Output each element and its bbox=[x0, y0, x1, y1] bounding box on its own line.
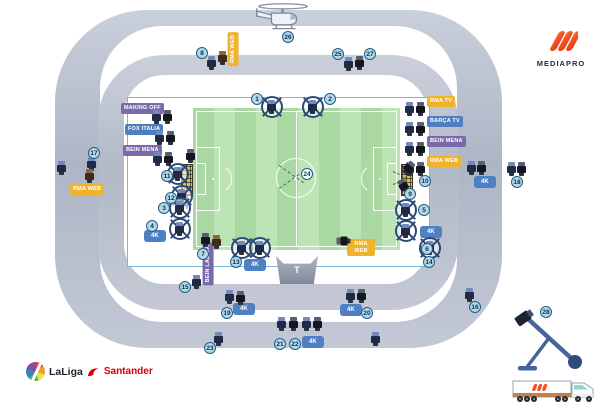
camera-number-badge: 22 bbox=[289, 338, 301, 350]
camera-icon bbox=[401, 224, 410, 238]
uhd-4k-label: 4K bbox=[340, 304, 362, 316]
camera-base bbox=[269, 111, 274, 114]
camera-base bbox=[291, 328, 296, 331]
camera-icon bbox=[517, 162, 526, 176]
camera-body bbox=[313, 321, 322, 328]
camera-body bbox=[237, 245, 246, 252]
camera-number-badge: 27 bbox=[364, 48, 376, 60]
camera-base bbox=[214, 246, 219, 249]
camera-icon bbox=[344, 57, 353, 71]
camera-icon bbox=[166, 131, 175, 145]
camera-icon bbox=[467, 161, 476, 175]
camera-base bbox=[216, 343, 221, 346]
camera-body bbox=[175, 226, 184, 233]
camera-icon bbox=[85, 169, 94, 183]
broadcast-label: BEIN MENA bbox=[427, 136, 466, 147]
camera-number-badge: 16 bbox=[469, 301, 481, 313]
camera-overlay-layer: MAKING OFFFOX ITALIABEIN MENARMA TVBARÇA… bbox=[0, 0, 605, 419]
camera-icon bbox=[57, 161, 66, 175]
camera-icon bbox=[477, 161, 486, 175]
camera-number-badge: 23 bbox=[204, 342, 216, 354]
camera-body bbox=[225, 294, 234, 301]
camera-icon bbox=[155, 131, 164, 145]
camera-number-badge: 4 bbox=[146, 220, 158, 232]
camera-body bbox=[153, 156, 162, 163]
camera-body bbox=[308, 104, 317, 111]
camera-icon bbox=[201, 233, 210, 247]
camera-base bbox=[87, 180, 92, 183]
camera-base bbox=[346, 68, 351, 71]
camera-number-badge: 19 bbox=[221, 307, 233, 319]
broadcast-label: RMA WEB bbox=[347, 239, 375, 256]
camera-base bbox=[220, 62, 225, 65]
camera-body bbox=[164, 156, 173, 163]
camera-number-badge: 17 bbox=[88, 147, 100, 159]
camera-icon bbox=[207, 56, 216, 70]
camera-base bbox=[227, 301, 232, 304]
camera-number-badge: 21 bbox=[274, 338, 286, 350]
camera-body bbox=[214, 336, 223, 343]
camera-icon bbox=[214, 332, 223, 346]
camera-base bbox=[203, 244, 208, 247]
camera-icon bbox=[236, 291, 245, 305]
camera-icon bbox=[405, 102, 414, 116]
camera-body bbox=[416, 106, 425, 113]
camera-icon bbox=[267, 100, 276, 114]
camera-icon bbox=[308, 100, 317, 114]
camera-base bbox=[348, 300, 353, 303]
camera-base bbox=[407, 113, 412, 116]
camera-icon bbox=[405, 122, 414, 136]
camera-body bbox=[405, 106, 414, 113]
camera-base bbox=[418, 113, 423, 116]
camera-icon bbox=[212, 235, 221, 249]
camera-icon bbox=[416, 102, 425, 116]
broadcast-label: RMA WEB bbox=[228, 32, 239, 66]
camera-base bbox=[239, 252, 244, 255]
camera-base bbox=[348, 239, 351, 244]
camera-base bbox=[479, 172, 484, 175]
stadium-camera-plan: T bbox=[0, 0, 605, 419]
camera-number-badge: 20 bbox=[361, 307, 373, 319]
camera-body bbox=[186, 153, 195, 160]
broadcast-label: BARÇA TV bbox=[427, 116, 463, 127]
camera-body bbox=[507, 166, 516, 173]
camera-icon bbox=[237, 241, 246, 255]
camera-body bbox=[416, 166, 425, 173]
camera-base bbox=[403, 235, 408, 238]
camera-icon bbox=[405, 142, 414, 156]
camera-body bbox=[401, 207, 410, 214]
camera-body bbox=[517, 166, 526, 173]
camera-body bbox=[467, 165, 476, 172]
camera-body bbox=[87, 161, 96, 168]
camera-icon bbox=[225, 290, 234, 304]
camera-icon bbox=[218, 51, 227, 65]
camera-body bbox=[212, 239, 221, 246]
camera-base bbox=[407, 153, 412, 156]
camera-body bbox=[236, 295, 245, 302]
camera-base bbox=[168, 142, 173, 145]
camera-number-badge: 8 bbox=[196, 47, 208, 59]
camera-icon bbox=[346, 289, 355, 303]
camera-number-badge: 18 bbox=[511, 176, 523, 188]
camera-icon bbox=[163, 110, 172, 124]
uhd-4k-label: 4K bbox=[144, 230, 166, 242]
camera-number-badge: 9 bbox=[404, 188, 416, 200]
camera-body bbox=[155, 135, 164, 142]
camera-body bbox=[416, 146, 425, 153]
camera-base bbox=[238, 302, 243, 305]
camera-base bbox=[403, 214, 408, 217]
camera-body bbox=[341, 237, 348, 246]
camera-body bbox=[85, 173, 94, 180]
camera-base bbox=[154, 121, 159, 124]
camera-body bbox=[355, 60, 364, 67]
camera-number-badge: 13 bbox=[230, 256, 242, 268]
camera-body bbox=[405, 146, 414, 153]
camera-icon bbox=[313, 317, 322, 331]
camera-body bbox=[344, 61, 353, 68]
camera-base bbox=[279, 328, 284, 331]
camera-body bbox=[346, 293, 355, 300]
camera-base bbox=[418, 153, 423, 156]
camera-icon bbox=[175, 222, 184, 236]
camera-body bbox=[277, 321, 286, 328]
camera-body bbox=[255, 245, 264, 252]
uhd-4k-label: 4K bbox=[244, 259, 266, 271]
camera-body bbox=[163, 114, 172, 121]
camera-icon bbox=[152, 110, 161, 124]
camera-body bbox=[57, 165, 66, 172]
camera-ring-icon bbox=[249, 237, 271, 259]
camera-base bbox=[310, 111, 315, 114]
camera-icon bbox=[416, 162, 425, 176]
camera-number-badge: 12 bbox=[165, 192, 177, 204]
broadcast-label: RMA TV bbox=[427, 96, 455, 107]
camera-ring-icon bbox=[169, 218, 191, 240]
camera-number-badge: 3 bbox=[158, 202, 170, 214]
camera-body bbox=[192, 279, 201, 286]
camera-ring-icon bbox=[395, 199, 417, 221]
camera-icon bbox=[173, 167, 182, 181]
camera-base bbox=[59, 172, 64, 175]
camera-icon bbox=[302, 317, 311, 331]
camera-base bbox=[166, 163, 171, 166]
camera-base bbox=[155, 163, 160, 166]
camera-number-badge: 26 bbox=[282, 31, 294, 43]
camera-body bbox=[416, 126, 425, 133]
camera-base bbox=[177, 212, 182, 215]
camera-number-badge: 10 bbox=[419, 175, 431, 187]
camera-body bbox=[218, 55, 227, 62]
camera-base bbox=[157, 142, 162, 145]
camera-icon bbox=[175, 201, 184, 215]
camera-icon bbox=[186, 149, 195, 163]
camera-base bbox=[509, 173, 514, 176]
camera-icon bbox=[357, 289, 366, 303]
camera-icon bbox=[255, 241, 264, 255]
camera-base bbox=[165, 121, 170, 124]
camera-body bbox=[173, 171, 182, 178]
broadcast-label: RMA WEB bbox=[70, 184, 104, 195]
camera-body bbox=[371, 336, 380, 343]
camera-number-badge: 25 bbox=[332, 48, 344, 60]
camera-icon bbox=[507, 162, 516, 176]
camera-icon bbox=[164, 152, 173, 166]
camera-body bbox=[477, 165, 486, 172]
camera-number-badge: 24 bbox=[301, 168, 313, 180]
camera-icon bbox=[192, 275, 201, 289]
camera-base bbox=[418, 133, 423, 136]
camera-body bbox=[405, 126, 414, 133]
camera-icon bbox=[416, 122, 425, 136]
camera-body bbox=[302, 321, 311, 328]
camera-icon bbox=[337, 237, 351, 246]
camera-body bbox=[175, 205, 184, 212]
camera-number-badge: 7 bbox=[197, 248, 209, 260]
camera-body bbox=[357, 293, 366, 300]
camera-number-badge: 1 bbox=[251, 93, 263, 105]
camera-number-badge: 15 bbox=[179, 281, 191, 293]
camera-number-badge: 6 bbox=[421, 243, 433, 255]
camera-body bbox=[207, 60, 216, 67]
camera-base bbox=[209, 67, 214, 70]
camera-base bbox=[177, 233, 182, 236]
camera-body bbox=[401, 228, 410, 235]
camera-icon bbox=[416, 142, 425, 156]
camera-number-badge: 5 bbox=[418, 204, 430, 216]
camera-body bbox=[289, 321, 298, 328]
camera-icon bbox=[277, 317, 286, 331]
camera-number-badge: 11 bbox=[161, 170, 173, 182]
camera-base bbox=[304, 328, 309, 331]
camera-body bbox=[152, 114, 161, 121]
camera-base bbox=[359, 300, 364, 303]
camera-ring-icon bbox=[261, 96, 283, 118]
camera-base bbox=[519, 173, 524, 176]
camera-icon bbox=[371, 332, 380, 346]
broadcast-label: RMA WEB bbox=[427, 156, 461, 167]
camera-base bbox=[257, 252, 262, 255]
camera-base bbox=[194, 286, 199, 289]
camera-base bbox=[188, 160, 193, 163]
camera-base bbox=[357, 67, 362, 70]
camera-icon bbox=[355, 56, 364, 70]
camera-base bbox=[407, 133, 412, 136]
uhd-4k-label: 4K bbox=[302, 336, 324, 348]
camera-icon bbox=[401, 160, 417, 177]
camera-number-badge: 28 bbox=[540, 306, 552, 318]
camera-body bbox=[465, 292, 474, 299]
camera-base bbox=[373, 343, 378, 346]
camera-base bbox=[315, 328, 320, 331]
camera-base bbox=[175, 178, 180, 181]
camera-number-badge: 2 bbox=[324, 93, 336, 105]
camera-icon bbox=[289, 317, 298, 331]
camera-icon bbox=[401, 203, 410, 217]
camera-base bbox=[469, 172, 474, 175]
camera-body bbox=[166, 135, 175, 142]
camera-ring-icon bbox=[395, 220, 417, 242]
camera-icon bbox=[465, 288, 474, 302]
uhd-4k-label: 4K bbox=[474, 176, 496, 188]
camera-icon bbox=[153, 152, 162, 166]
camera-body bbox=[201, 237, 210, 244]
camera-ring-icon bbox=[302, 96, 324, 118]
camera-number-badge: 14 bbox=[423, 256, 435, 268]
camera-body bbox=[267, 104, 276, 111]
